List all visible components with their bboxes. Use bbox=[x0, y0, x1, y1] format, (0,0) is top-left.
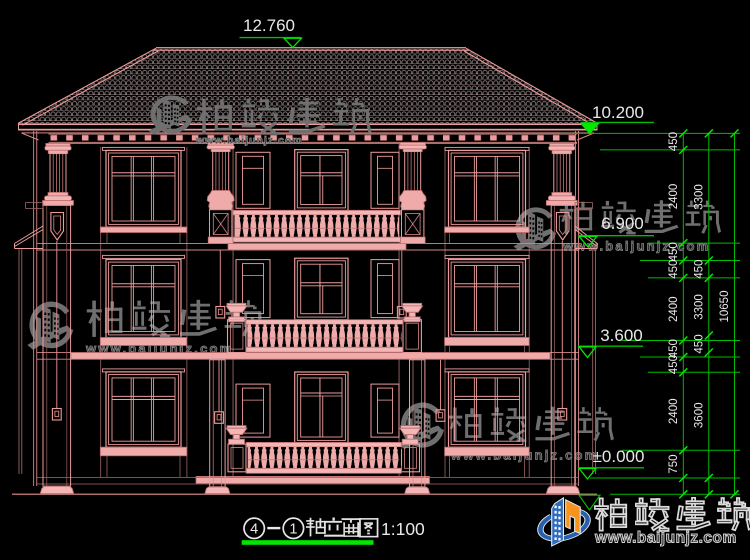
svg-text:www.baijunjz.com: www.baijunjz.com bbox=[195, 135, 303, 147]
svg-text:450: 450 bbox=[693, 334, 705, 353]
svg-text:±0.000: ±0.000 bbox=[593, 447, 645, 466]
svg-text:2400: 2400 bbox=[668, 399, 680, 425]
svg-text:450: 450 bbox=[668, 355, 680, 374]
svg-text:450: 450 bbox=[668, 260, 680, 279]
svg-text:www.baijunjz.com: www.baijunjz.com bbox=[594, 530, 737, 547]
svg-text:450: 450 bbox=[668, 132, 680, 151]
svg-text:3300: 3300 bbox=[693, 184, 705, 210]
svg-text:10650: 10650 bbox=[719, 291, 731, 323]
svg-text:10.200: 10.200 bbox=[592, 103, 644, 122]
svg-text:4: 4 bbox=[250, 522, 258, 538]
svg-text:1: 1 bbox=[289, 522, 297, 538]
svg-text:450: 450 bbox=[693, 260, 705, 279]
svg-text:3300: 3300 bbox=[693, 294, 705, 320]
svg-text:1:100: 1:100 bbox=[381, 519, 425, 539]
svg-text:6.900: 6.900 bbox=[601, 214, 644, 233]
svg-text:3.600: 3.600 bbox=[600, 326, 643, 345]
svg-text:2400: 2400 bbox=[668, 296, 680, 322]
svg-text:450: 450 bbox=[668, 242, 680, 261]
svg-text:750: 750 bbox=[668, 455, 680, 474]
svg-text:3600: 3600 bbox=[693, 403, 705, 429]
svg-text:12.760: 12.760 bbox=[243, 16, 295, 35]
svg-text:2400: 2400 bbox=[668, 184, 680, 210]
svg-text:www.baijunjz.com: www.baijunjz.com bbox=[562, 239, 710, 254]
